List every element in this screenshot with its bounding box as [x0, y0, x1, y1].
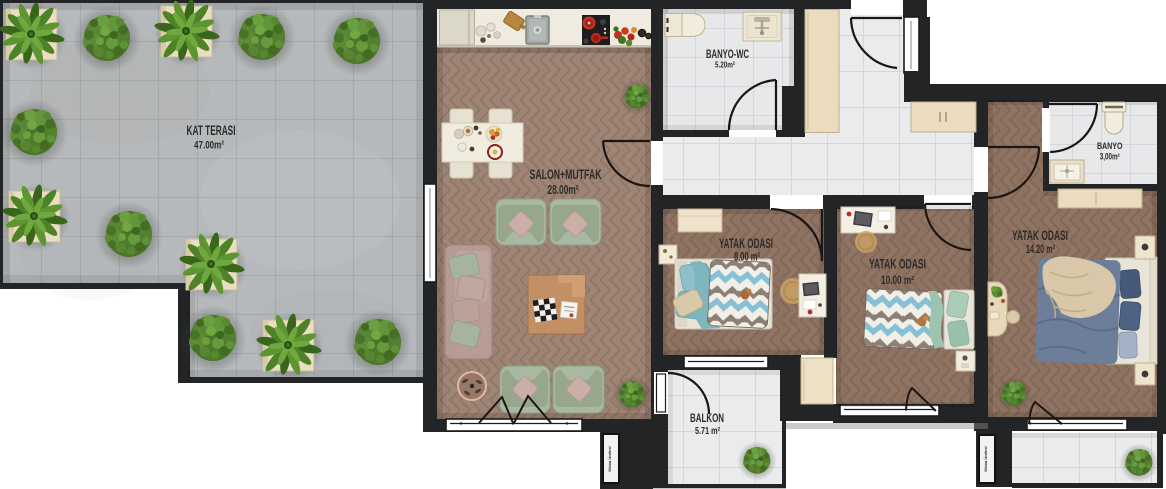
svg-text:Klima Ünitesi: Klima Ünitesi — [607, 446, 612, 471]
svg-text:8.00 m²: 8.00 m² — [734, 252, 760, 264]
svg-text:28.00m²: 28.00m² — [548, 183, 579, 197]
svg-text:5.20m²: 5.20m² — [715, 60, 735, 70]
svg-text:SALON+MUTFAK: SALON+MUTFAK — [530, 166, 602, 182]
svg-text:5.71 m²: 5.71 m² — [695, 426, 720, 437]
svg-text:Klima Ünitesi: Klima Ünitesi — [983, 446, 988, 471]
svg-text:YATAK ODASI: YATAK ODASI — [719, 236, 773, 251]
svg-text:YATAK ODASI: YATAK ODASI — [1012, 228, 1068, 243]
svg-text:3,00m²: 3,00m² — [1100, 152, 1120, 162]
svg-text:KAT TERASI: KAT TERASI — [187, 123, 236, 138]
svg-text:BALKON: BALKON — [690, 413, 724, 425]
svg-text:47.00m²: 47.00m² — [194, 140, 224, 152]
svg-text:YATAK ODASI: YATAK ODASI — [869, 257, 926, 272]
svg-text:14.20 m²: 14.20 m² — [1026, 244, 1055, 256]
svg-text:BANYO: BANYO — [1097, 141, 1123, 152]
svg-text:10.00 m²: 10.00 m² — [881, 275, 914, 287]
